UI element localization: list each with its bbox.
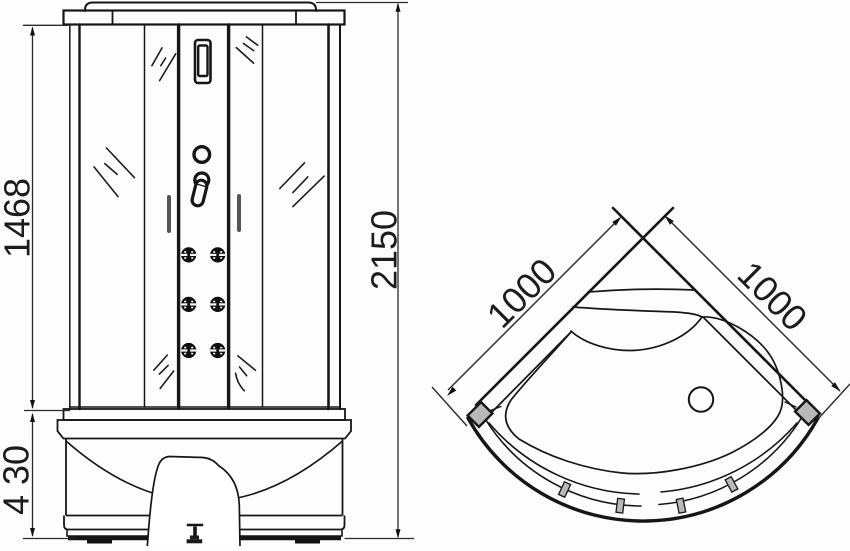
svg-text:4 30: 4 30 bbox=[0, 445, 37, 515]
svg-text:1468: 1468 bbox=[0, 178, 38, 258]
svg-text:2150: 2150 bbox=[364, 210, 405, 290]
